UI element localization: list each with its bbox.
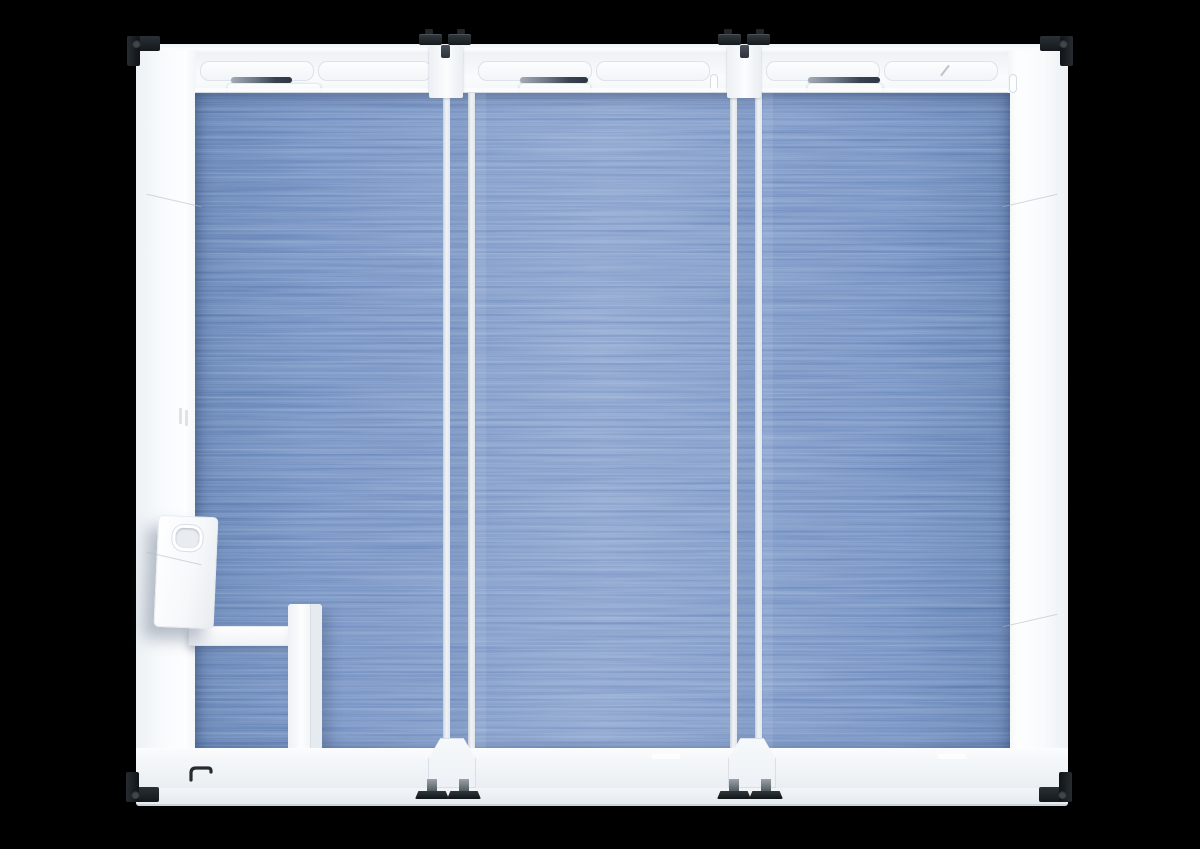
door-handle-icon — [186, 764, 216, 782]
lock-bolt — [441, 45, 450, 58]
lock-nub — [457, 29, 465, 34]
lock-plate — [448, 34, 471, 45]
partition-frame-line — [468, 93, 475, 750]
vestibule-wall-face — [288, 604, 310, 756]
foot-stem — [729, 779, 739, 792]
lock-bolt — [740, 45, 749, 58]
wall-notch — [185, 410, 188, 426]
leaning-door-panel — [154, 515, 219, 630]
partition-frame-line — [755, 93, 762, 750]
foot-base — [717, 791, 751, 799]
door-track-panel — [596, 61, 710, 81]
lock-plate — [718, 34, 741, 45]
bottom-wall-face — [136, 762, 1068, 788]
corner-casting — [1038, 770, 1072, 804]
glass-reflection — [476, 93, 486, 750]
vestibule-wall-side — [310, 604, 322, 756]
foot-base — [447, 791, 481, 799]
bottom-wall — [136, 748, 1068, 806]
foot — [451, 779, 477, 805]
foot-stem — [427, 779, 437, 792]
partition-frame-line — [730, 93, 737, 750]
glass-partition — [443, 93, 475, 750]
foot-base — [415, 791, 449, 799]
foot — [721, 779, 747, 805]
casting-hole — [131, 790, 140, 799]
casting-hole — [1059, 39, 1068, 48]
leveling-feet — [417, 779, 479, 805]
foot-stem — [459, 779, 469, 792]
glass-partition — [730, 93, 762, 750]
casting-hole — [132, 39, 141, 48]
foot — [753, 779, 779, 805]
door-track-panel — [318, 61, 432, 81]
glass-reflection — [763, 93, 773, 750]
lock-nub — [756, 29, 764, 34]
door-pull-pill — [1009, 74, 1017, 93]
partition-glass — [737, 93, 755, 750]
lock-nub — [724, 29, 732, 34]
partition-glass — [450, 93, 468, 750]
door-track-panel — [884, 61, 998, 81]
right-wall — [1006, 50, 1068, 750]
vestibule-right-wall — [288, 604, 322, 756]
casting-hole — [1058, 790, 1067, 799]
lock-nub — [425, 29, 433, 34]
leveling-feet — [719, 779, 781, 805]
floor-vent-detail — [938, 754, 966, 759]
wall-notch — [179, 408, 182, 424]
foot — [419, 779, 445, 805]
panel-handle-cutout — [175, 528, 200, 549]
lock-plate — [419, 34, 442, 45]
corner-casting — [127, 34, 161, 68]
vestibule-top-wall — [188, 626, 296, 646]
floor-vent-detail — [652, 754, 680, 759]
twist-lock-hardware — [417, 32, 473, 48]
foot-base — [749, 791, 783, 799]
partition-frame-line — [443, 93, 450, 750]
twist-lock-hardware — [716, 32, 772, 48]
pod-top-view-render — [0, 0, 1200, 849]
corner-casting — [1039, 34, 1073, 68]
foot-stem — [761, 779, 771, 792]
lock-plate — [747, 34, 770, 45]
bottom-wall-sill — [136, 748, 1068, 762]
corner-casting — [126, 770, 160, 804]
bottom-wall-cap — [136, 788, 1068, 806]
